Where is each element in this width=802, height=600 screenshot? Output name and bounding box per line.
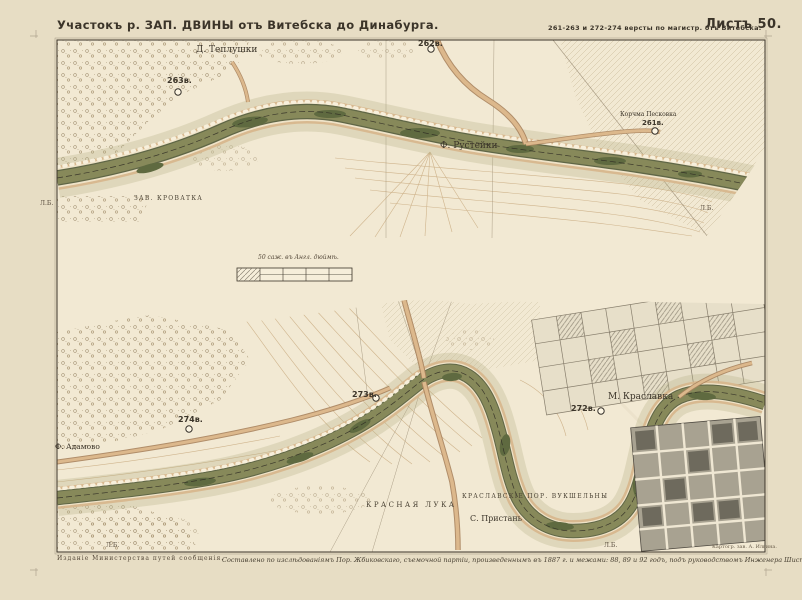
verst-273: 273в.: [352, 391, 377, 399]
bank-mark-upper-left: Л.Б.: [40, 201, 53, 207]
printer-line: Картогр. зав. А. Ильина.: [712, 545, 777, 550]
town-grid-dark: [631, 416, 771, 551]
label-rusteiki: Ф. Рустейки: [440, 142, 498, 151]
bank-mark-lower-left: Л.Б.: [106, 543, 119, 549]
label-tavern: Корчма Песковка: [620, 112, 676, 118]
label-pristan: С. Пристань: [470, 515, 522, 523]
label-krovatka: ЗАВ. КРОВАТКА: [134, 196, 203, 202]
bank-mark-lower-right: Л.Б.: [604, 543, 617, 549]
credit-line: Составлено по изслѣдованіямъ Пор. Жбиков…: [222, 557, 802, 564]
bank-mark-upper-right: Л.Б.: [700, 206, 713, 212]
verst-262: 262в.: [418, 40, 443, 48]
map-engraving: [0, 0, 802, 600]
verst-261: 261в.: [642, 120, 664, 127]
scale-bar: [237, 268, 352, 281]
publisher-line: Изданіе Министерства путей сообщенія.: [57, 556, 224, 562]
scale-label: 50 саж. въ Англ. дюймѣ.: [258, 255, 339, 261]
label-kraslavka: М. Краславка: [608, 393, 673, 402]
label-adamovo: Ф. Адамово: [55, 443, 100, 451]
map-sheet: Участокъ р. ЗАП. ДВИНЫ отъ Витебска до Д…: [0, 0, 802, 600]
verst-272: 272в.: [571, 405, 596, 413]
label-krasnaya-luka: КРАСНАЯ ЛУКА: [366, 502, 457, 509]
label-teplushki: Д. Теплушки: [196, 46, 257, 55]
verst-274: 274в.: [178, 416, 203, 424]
verst-263: 263в.: [167, 77, 192, 85]
sheet-number: Листъ 50.: [705, 18, 782, 31]
label-rapids: КРАСЛАВСКІЕ ПОР. ВУКШЕЛЬНЫ: [462, 494, 608, 500]
sheet-title: Участокъ р. ЗАП. ДВИНЫ отъ Витебска до Д…: [57, 20, 439, 32]
